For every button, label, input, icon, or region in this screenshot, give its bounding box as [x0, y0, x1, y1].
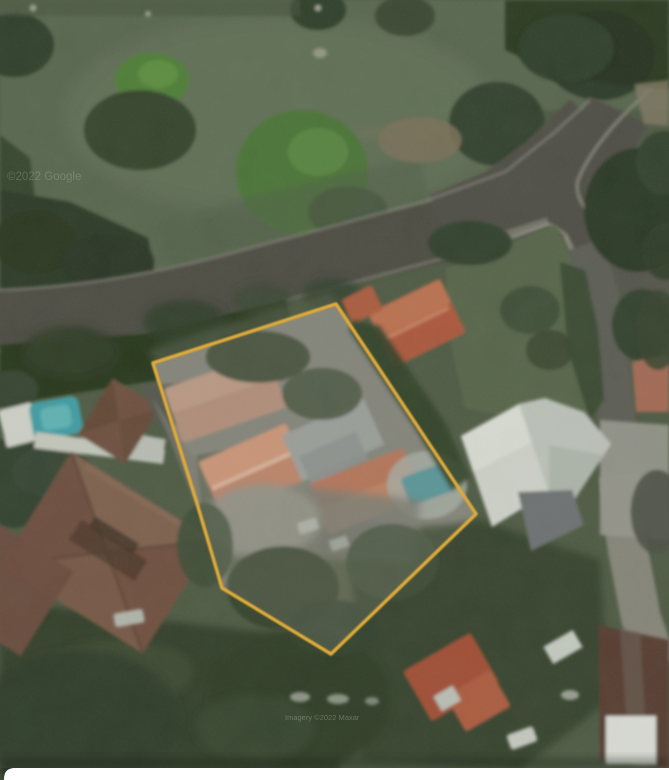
- svg-text:Imagery ©2022 Maxar: Imagery ©2022 Maxar: [285, 713, 360, 722]
- svg-text:©2022 Google: ©2022 Google: [7, 171, 81, 183]
